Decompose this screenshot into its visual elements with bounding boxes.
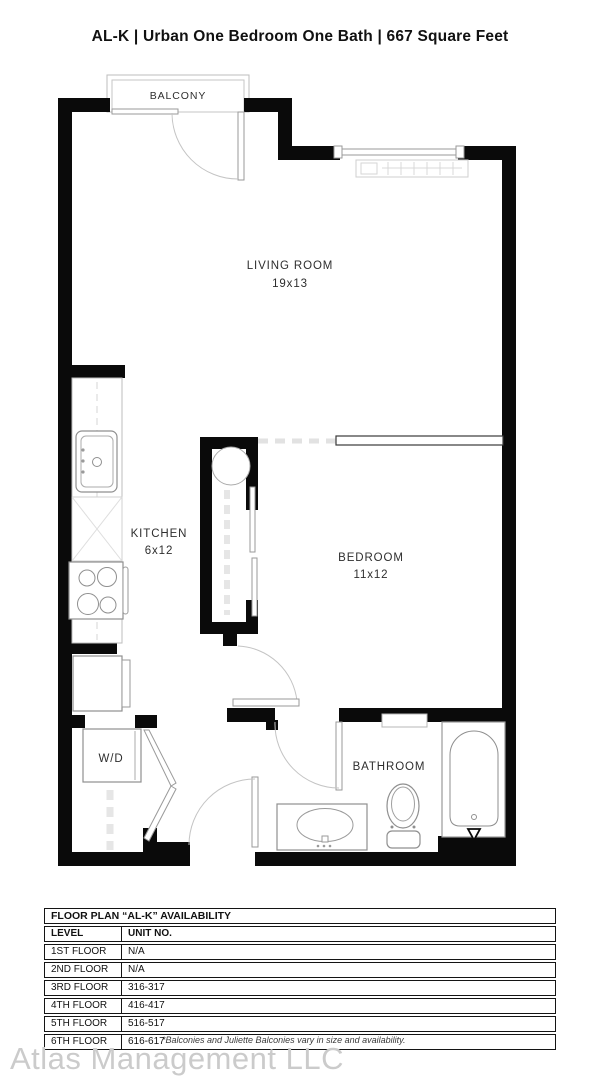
refrigerator: [73, 656, 130, 711]
unit-cell: 516-517: [122, 1016, 556, 1032]
water-heater: [212, 447, 250, 485]
bedroom-label: BEDROOM: [338, 552, 404, 564]
level-cell: 3RD FLOOR: [44, 980, 122, 996]
unit-cell: N/A: [122, 962, 556, 978]
toilet: [387, 784, 420, 848]
bathroom-label: BATHROOM: [353, 761, 426, 773]
bathroom-door: [275, 722, 342, 790]
balcony-door: [112, 109, 244, 180]
table-row: 2ND FLOOR N/A: [44, 962, 556, 978]
unit-cell: 316-317: [122, 980, 556, 996]
level-cell: 4TH FLOOR: [44, 998, 122, 1014]
table-title-row: FLOOR PLAN “AL-K” AVAILABILITY: [44, 908, 556, 924]
kitchen-label: KITCHEN: [131, 528, 188, 540]
bedroom-door: [233, 646, 299, 706]
table-row: 1ST FLOOR N/A: [44, 944, 556, 960]
living-room-dimensions: 19x13: [272, 278, 308, 290]
stove: [69, 562, 128, 619]
table-title: FLOOR PLAN “AL-K” AVAILABILITY: [44, 908, 556, 924]
kitchen-dimensions: 6x12: [145, 545, 174, 557]
table-row: 4TH FLOOR 416-417: [44, 998, 556, 1014]
column-header-level: LEVEL: [44, 926, 122, 942]
living-room-label: LIVING ROOM: [247, 260, 334, 272]
wd-bifold-doors: [144, 730, 176, 841]
dishwasher: [72, 497, 122, 561]
washer-dryer-label: W/D: [98, 753, 123, 765]
page-title: AL-K | Urban One Bedroom One Bath | 667 …: [0, 28, 600, 46]
balcony-label: BALCONY: [150, 90, 206, 102]
level-cell: 1ST FLOOR: [44, 944, 122, 960]
bathtub: [442, 722, 505, 840]
entry-door: [189, 777, 258, 847]
table-header-row: LEVEL UNIT NO.: [44, 926, 556, 942]
vanity-sink: [277, 804, 367, 850]
baseboard-heater: [356, 160, 468, 177]
kitchen-sink: [76, 431, 117, 492]
unit-cell: N/A: [122, 944, 556, 960]
floor-plan-page: AL-K | Urban One Bedroom One Bath | 667 …: [0, 0, 600, 1080]
table-row: 5TH FLOOR 516-517: [44, 1016, 556, 1032]
room-labels: BALCONY LIVING ROOM 19x13 KITCHEN 6x12 B…: [98, 90, 425, 773]
management-watermark: Atlas Management LLC: [10, 1041, 344, 1077]
bathroom-shelf: [382, 714, 427, 727]
bedroom-dimensions: 11x12: [354, 569, 389, 581]
level-cell: 5TH FLOOR: [44, 1016, 122, 1032]
floor-plan-drawing: BALCONY LIVING ROOM 19x13 KITCHEN 6x12 B…: [0, 60, 600, 900]
window: [334, 146, 464, 158]
unit-cell: 416-417: [122, 998, 556, 1014]
table-row: 3RD FLOOR 316-317: [44, 980, 556, 996]
level-cell: 2ND FLOOR: [44, 962, 122, 978]
availability-table: FLOOR PLAN “AL-K” AVAILABILITY LEVEL UNI…: [44, 906, 556, 1052]
column-header-unit-no: UNIT NO.: [122, 926, 556, 942]
bedroom-partition: [258, 436, 503, 445]
